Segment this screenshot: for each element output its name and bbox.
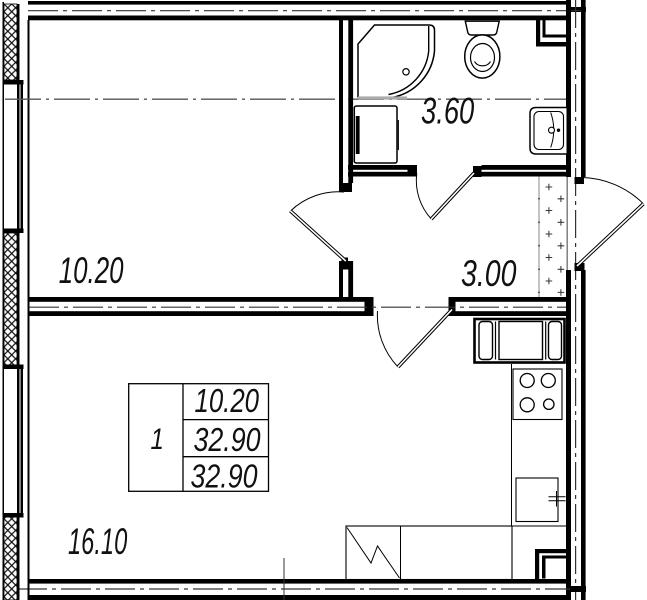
svg-text:16.10: 16.10 xyxy=(68,521,128,563)
svg-text:1: 1 xyxy=(151,421,164,455)
svg-text:3.00: 3.00 xyxy=(461,252,517,293)
svg-text:10.20: 10.20 xyxy=(59,249,124,291)
svg-text:32.90: 32.90 xyxy=(191,459,258,495)
svg-text:10.20: 10.20 xyxy=(195,383,260,420)
svg-text:3.60: 3.60 xyxy=(421,90,474,131)
svg-text:32.90: 32.90 xyxy=(194,422,261,458)
